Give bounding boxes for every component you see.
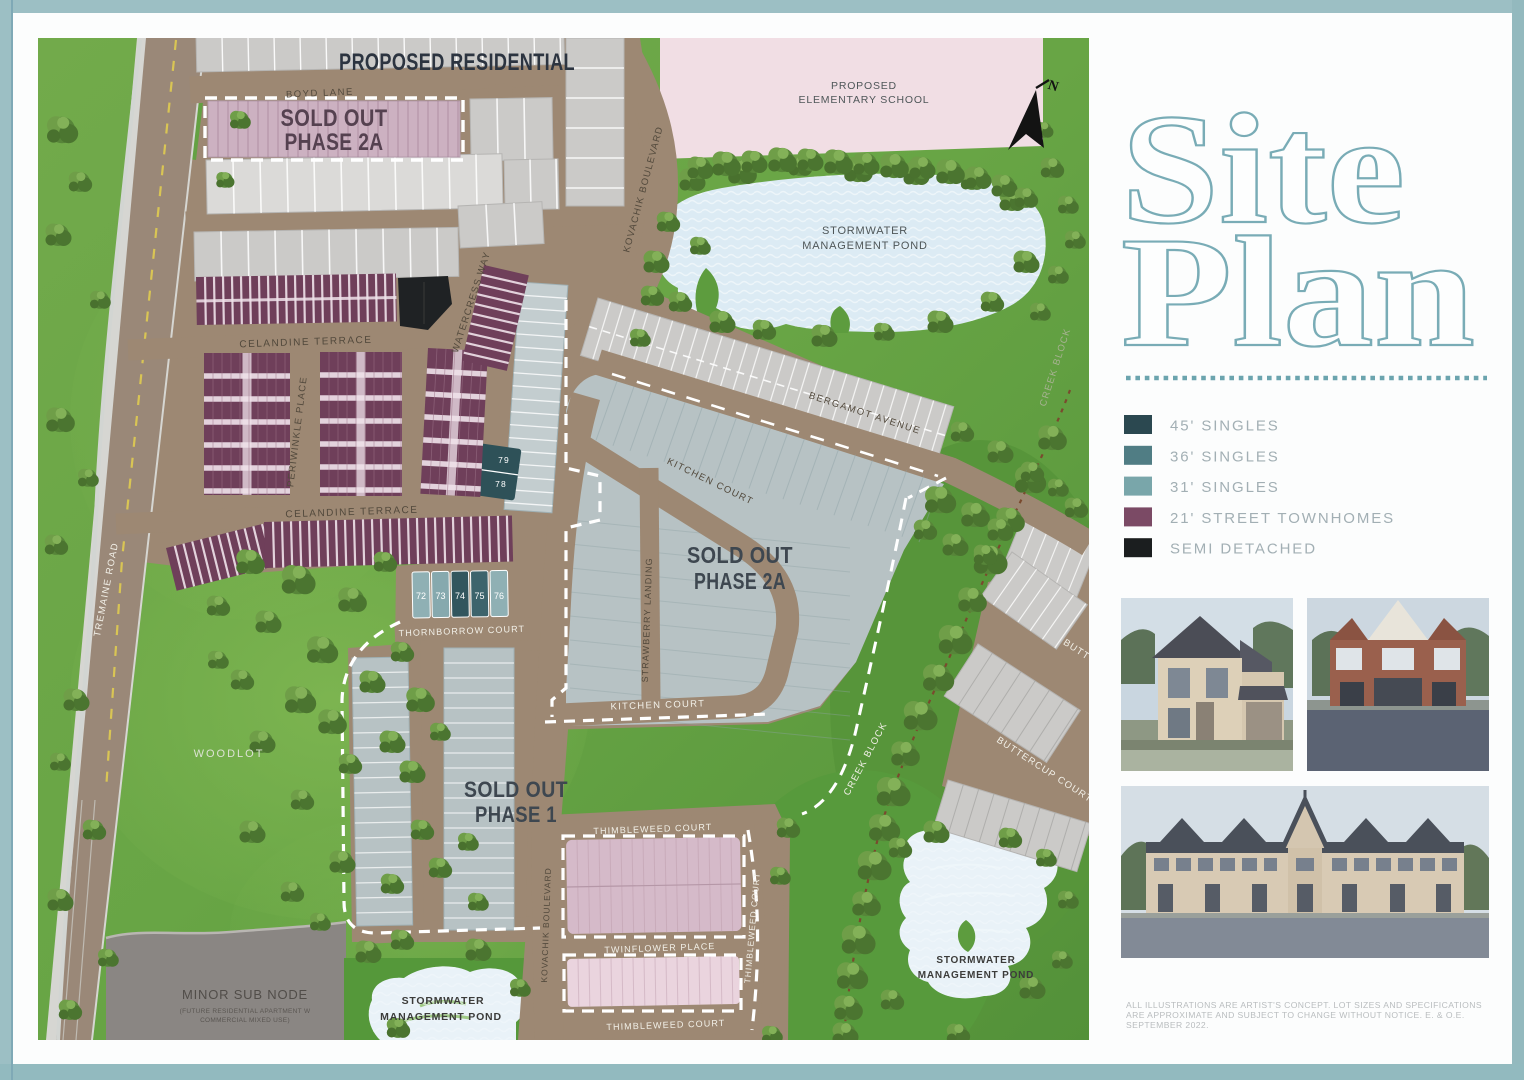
svg-text:SOLD OUT: SOLD OUT <box>464 777 568 802</box>
svg-text:PHASE 1: PHASE 1 <box>475 802 557 827</box>
svg-text:72: 72 <box>416 591 426 601</box>
svg-text:SOLD OUT: SOLD OUT <box>281 105 388 132</box>
svg-text:ARE APPROXIMATE AND SUBJECT TO: ARE APPROXIMATE AND SUBJECT TO CHANGE WI… <box>1126 1010 1465 1020</box>
svg-text:PROPOSED: PROPOSED <box>831 80 897 92</box>
svg-text:(FUTURE RESIDENTIAL APARTMENT: (FUTURE RESIDENTIAL APARTMENT W <box>180 1008 311 1015</box>
svg-text:75: 75 <box>474 591 484 601</box>
svg-text:PROPOSED RESIDENTIAL: PROPOSED RESIDENTIAL <box>339 49 575 76</box>
svg-text:STORMWATER: STORMWATER <box>822 225 908 237</box>
svg-text:78: 78 <box>495 479 507 489</box>
svg-text:MINOR SUB NODE: MINOR SUB NODE <box>182 987 308 1002</box>
svg-text:74: 74 <box>455 591 465 601</box>
svg-text:73: 73 <box>435 591 445 601</box>
svg-text:Plan: Plan <box>1121 205 1475 380</box>
svg-text:79: 79 <box>498 455 510 465</box>
svg-text:PHASE 2A: PHASE 2A <box>694 568 786 594</box>
svg-text:COMMERCIAL MIXED USE): COMMERCIAL MIXED USE) <box>200 1017 290 1024</box>
svg-text:21' STREET TOWNHOMES: 21' STREET TOWNHOMES <box>1170 510 1395 527</box>
svg-text:MANAGEMENT POND: MANAGEMENT POND <box>802 240 927 252</box>
svg-text:36' SINGLES: 36' SINGLES <box>1170 448 1280 465</box>
svg-text:SEMI DETACHED: SEMI DETACHED <box>1170 541 1317 558</box>
svg-text:MANAGEMENT POND: MANAGEMENT POND <box>380 1011 502 1023</box>
svg-text:31' SINGLES: 31' SINGLES <box>1170 479 1280 496</box>
svg-text:SOLD OUT: SOLD OUT <box>687 542 793 568</box>
svg-text:76: 76 <box>494 591 504 601</box>
svg-text:ELEMENTARY SCHOOL: ELEMENTARY SCHOOL <box>799 94 930 106</box>
svg-text:ALL ILLUSTRATIONS ARE ARTIST'S: ALL ILLUSTRATIONS ARE ARTIST'S CONCEPT. … <box>1126 1000 1482 1010</box>
svg-text:PHASE 2A: PHASE 2A <box>285 129 384 156</box>
svg-text:STORMWATER: STORMWATER <box>402 995 485 1007</box>
svg-text:STORMWATER: STORMWATER <box>936 955 1015 966</box>
svg-text:45' SINGLES: 45' SINGLES <box>1170 418 1280 435</box>
svg-text:SEPTEMBER 2022.: SEPTEMBER 2022. <box>1126 1020 1209 1030</box>
svg-text:WOODLOT: WOODLOT <box>194 748 265 760</box>
svg-text:MANAGEMENT POND: MANAGEMENT POND <box>918 970 1034 981</box>
